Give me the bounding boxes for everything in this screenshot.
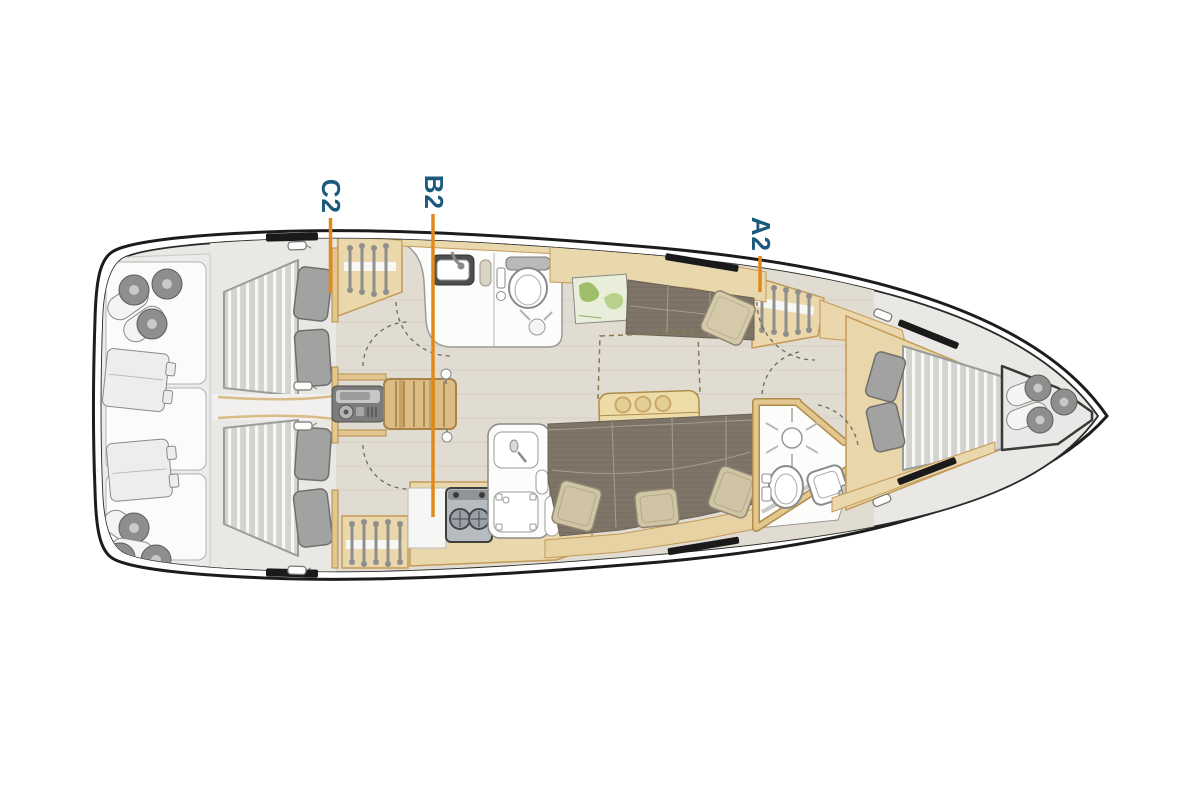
cupholder <box>635 396 651 412</box>
stove-icon <box>446 488 492 542</box>
berth-divider <box>212 394 336 420</box>
sink-icon <box>432 252 474 285</box>
engine-box <box>332 386 384 422</box>
chart-table <box>572 274 629 324</box>
marker-label-b2: B2 <box>419 175 449 210</box>
cupholder <box>655 396 671 412</box>
hanging-locker-aft-starboard <box>342 516 408 568</box>
marker-label-a2: A2 <box>746 217 776 252</box>
pillow <box>293 266 333 322</box>
marker-label-c2: C2 <box>316 179 346 214</box>
towel-rail <box>480 260 491 286</box>
stern-gear-box-starboard <box>106 438 180 502</box>
pillow <box>294 427 332 481</box>
galley-counter-white <box>408 488 446 548</box>
yacht-floorplan-canvas: C2 B2 A2 <box>0 0 1200 800</box>
sofa-pillow <box>634 488 680 528</box>
pillow <box>294 329 332 387</box>
pillow <box>293 488 334 548</box>
cupholder <box>615 397 631 413</box>
floorplan-svg: C2 B2 A2 <box>0 0 1200 800</box>
stern-gear-box-port <box>102 348 177 413</box>
